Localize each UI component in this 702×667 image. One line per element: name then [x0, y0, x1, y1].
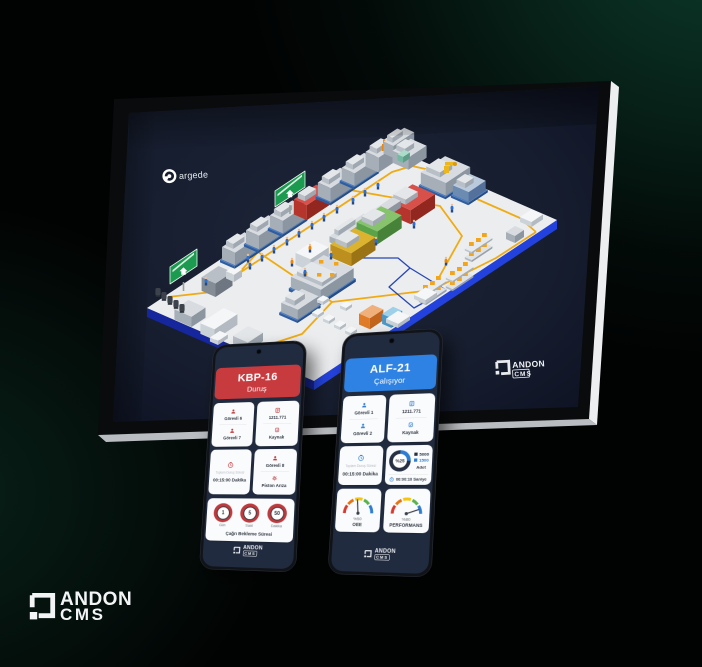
svg-text:ANDON: ANDON	[512, 358, 545, 370]
svg-text:argede: argede	[179, 169, 209, 181]
